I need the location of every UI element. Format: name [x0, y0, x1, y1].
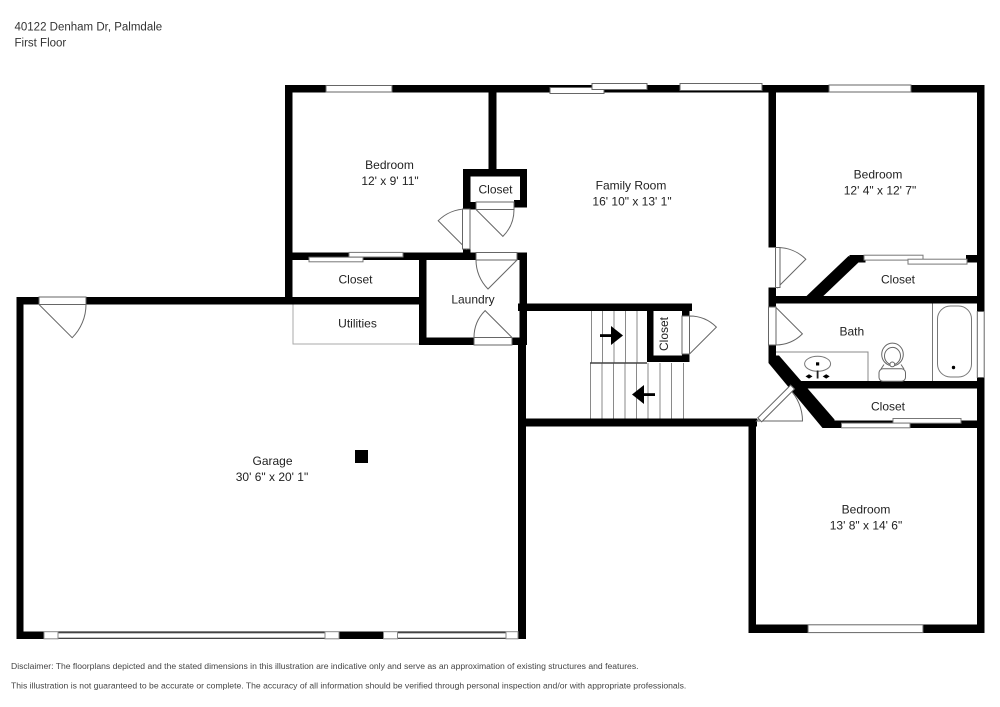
svg-text:Bath: Bath: [839, 325, 864, 339]
svg-text:This illustration is not guara: This illustration is not guaranteed to b…: [11, 681, 686, 691]
svg-text:Garage: Garage: [252, 454, 292, 468]
svg-text:Closet: Closet: [338, 272, 373, 286]
svg-text:Bedroom: Bedroom: [854, 168, 903, 182]
svg-text:16' 10" x 13' 1": 16' 10" x 13' 1": [592, 195, 671, 209]
svg-text:Utilities: Utilities: [338, 317, 377, 331]
svg-text:12' 4" x 12' 7": 12' 4" x 12' 7": [844, 184, 916, 198]
svg-text:Laundry: Laundry: [451, 292, 494, 306]
svg-text:Family Room: Family Room: [596, 179, 667, 193]
svg-text:Closet: Closet: [881, 273, 916, 287]
svg-text:Closet: Closet: [478, 183, 513, 197]
svg-text:Bedroom: Bedroom: [365, 158, 414, 172]
svg-text:13' 8" x 14' 6": 13' 8" x 14' 6": [830, 519, 902, 533]
svg-text:Closet: Closet: [657, 316, 671, 351]
svg-text:Disclaimer: The floorplans dep: Disclaimer: The floorplans depicted and …: [11, 661, 639, 671]
svg-text:Bedroom: Bedroom: [842, 502, 891, 516]
svg-text:Closet: Closet: [871, 400, 906, 414]
svg-text:First Floor: First Floor: [15, 38, 67, 50]
svg-text:40122 Denham Dr, Palmdale: 40122 Denham Dr, Palmdale: [15, 22, 163, 34]
svg-text:30' 6" x 20' 1": 30' 6" x 20' 1": [236, 470, 308, 484]
svg-text:12' x 9' 11": 12' x 9' 11": [361, 174, 418, 188]
